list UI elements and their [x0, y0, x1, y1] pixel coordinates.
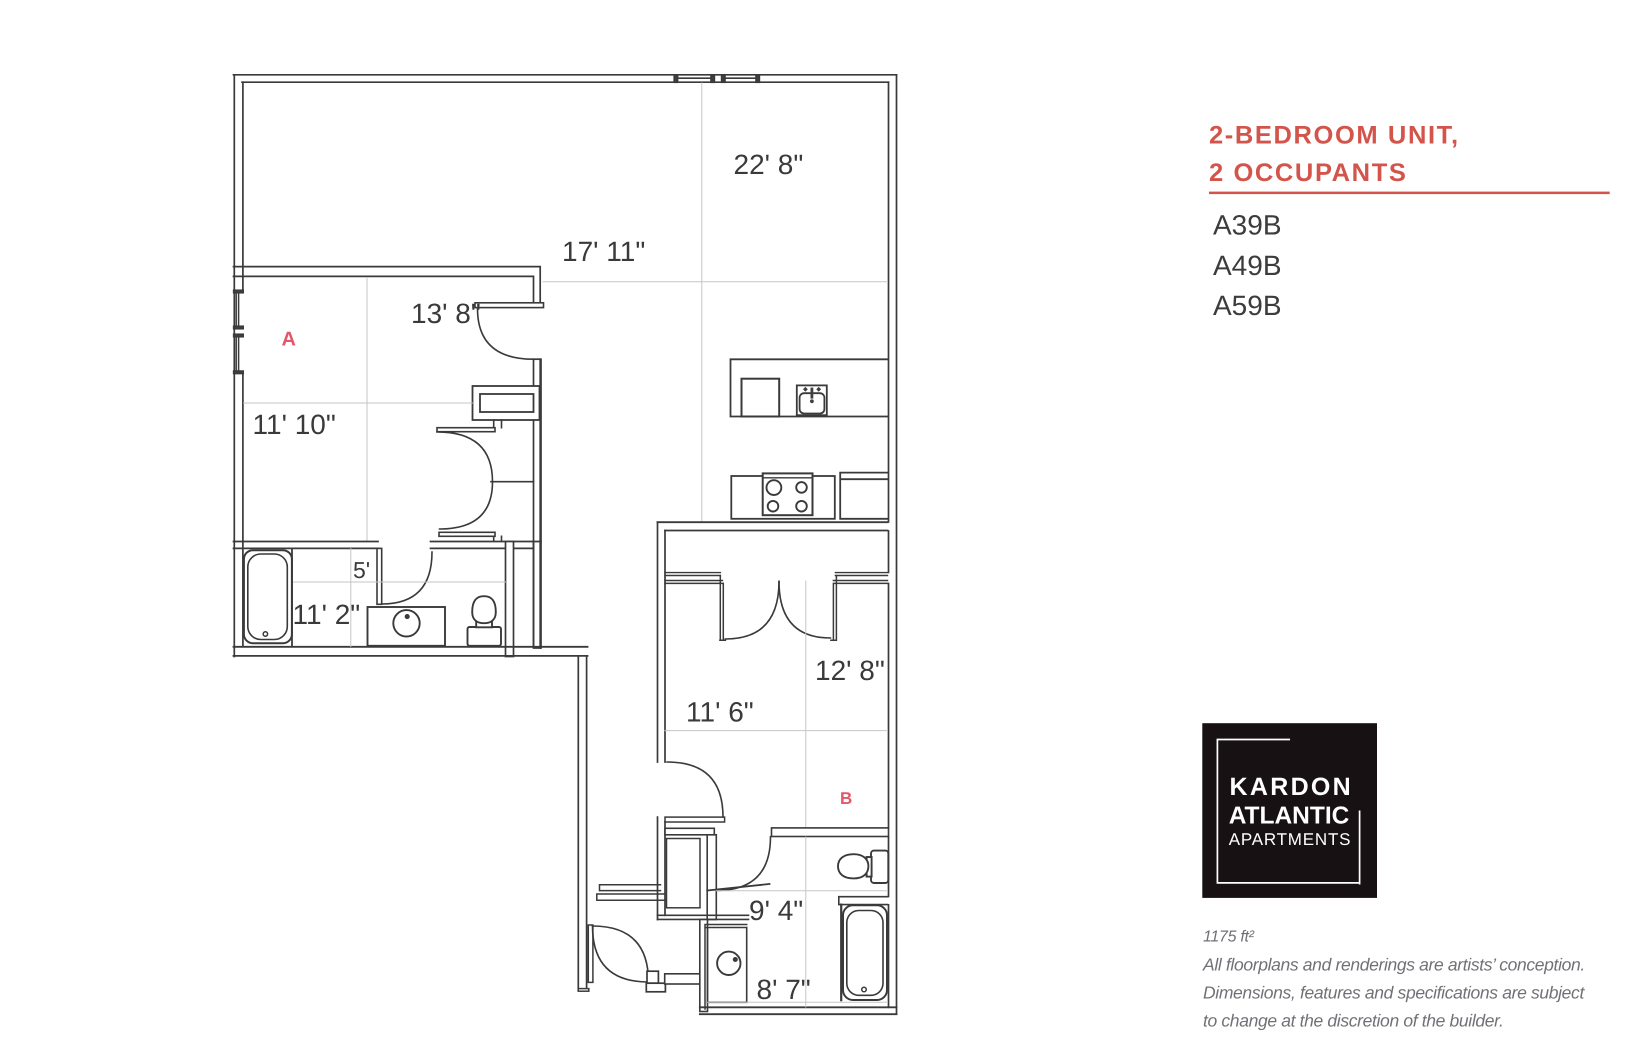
svg-text:11' 2": 11' 2" [293, 599, 361, 630]
svg-text:Dimensions, features and speci: Dimensions, features and specifications … [1203, 982, 1585, 1002]
svg-text:A: A [282, 329, 296, 351]
svg-text:All floorplans and renderings: All floorplans and renderings are artist… [1202, 955, 1585, 975]
svg-text:5': 5' [353, 557, 370, 583]
svg-text:12' 8": 12' 8" [815, 655, 885, 686]
svg-text:11' 10": 11' 10" [253, 409, 336, 440]
svg-text:17' 11": 17' 11" [562, 236, 645, 267]
svg-text:9' 4": 9' 4" [749, 895, 803, 926]
svg-text:APARTMENTS: APARTMENTS [1229, 830, 1352, 849]
svg-text:A59B: A59B [1213, 290, 1282, 321]
svg-text:22' 8": 22' 8" [734, 149, 804, 180]
svg-text:8' 7": 8' 7" [757, 974, 811, 1005]
svg-text:2 OCCUPANTS: 2 OCCUPANTS [1209, 159, 1407, 187]
svg-text:13' 8": 13' 8" [411, 298, 481, 329]
svg-text:B: B [840, 789, 852, 808]
svg-text:1175 ft²: 1175 ft² [1203, 929, 1255, 946]
svg-text:11' 6": 11' 6" [686, 697, 754, 728]
svg-text:A49B: A49B [1213, 250, 1282, 281]
svg-text:2-BEDROOM UNIT,: 2-BEDROOM UNIT, [1209, 122, 1460, 150]
svg-text:A39B: A39B [1213, 210, 1282, 241]
svg-text:KARDON: KARDON [1230, 773, 1354, 801]
svg-text:to change at the discretion of: to change at the discretion of the build… [1203, 1010, 1503, 1030]
svg-text:ATLANTIC: ATLANTIC [1229, 802, 1350, 829]
